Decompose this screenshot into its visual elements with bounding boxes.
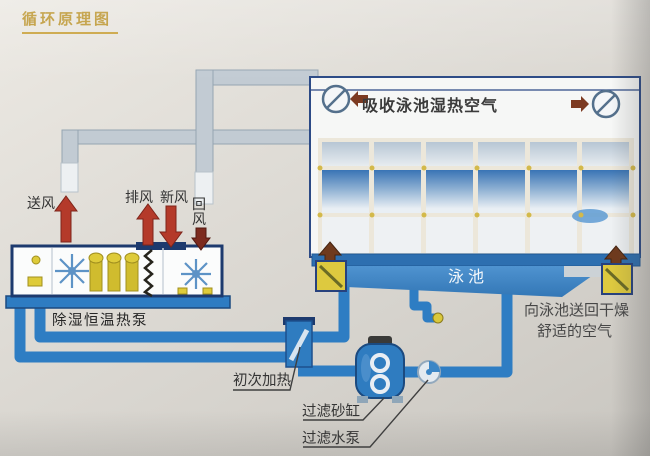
- initial-heating-label: 初次加热: [233, 369, 291, 390]
- heat-pump-unit: [6, 242, 230, 308]
- exhaust-air-arrow-icon: [137, 204, 159, 245]
- filter-pump: [418, 361, 440, 383]
- return-air-label: 回风: [192, 198, 208, 229]
- pool-label: 泳池: [448, 263, 488, 287]
- fresh-air-arrow-icon: [160, 206, 182, 247]
- compressors: [89, 253, 139, 291]
- fresh-air-label: 新风: [160, 187, 188, 207]
- absorb-air-label: 吸收泳池湿热空气: [362, 92, 498, 116]
- supply-air-duct: [61, 130, 318, 192]
- drain-cap: [433, 313, 443, 323]
- unit-fan-right-icon: [181, 259, 211, 289]
- heat-pump-label: 除湿恒温热泵: [52, 309, 148, 330]
- unit-fan-left-icon: [55, 254, 89, 288]
- supply-air-label: 送风: [27, 193, 55, 213]
- exhaust-air-label: 排风: [125, 187, 153, 207]
- page-title: 循环原理图: [22, 8, 118, 34]
- schematic-drawing: [0, 0, 650, 456]
- diagram-canvas: 循环原理图 吸收泳池湿热空气 泳池 向泳池送回干燥 舒适的空气 除湿恒温热泵 送…: [0, 0, 650, 456]
- initial-heater: [283, 317, 315, 367]
- roof-fan-left-icon: [323, 86, 349, 112]
- supply-air-arrow-icon: [55, 196, 77, 242]
- filter-pump-label: 过滤水泵: [302, 427, 360, 448]
- window-wall: [318, 138, 636, 255]
- sand-filter-tank: [356, 336, 404, 403]
- return-dry-air-note-line2: 舒适的空气: [537, 320, 612, 341]
- return-dry-air-note-line1: 向泳池送回干燥: [524, 299, 629, 320]
- sand-filter-label: 过滤砂缸: [302, 400, 360, 421]
- roof-fan-right-icon: [593, 91, 619, 117]
